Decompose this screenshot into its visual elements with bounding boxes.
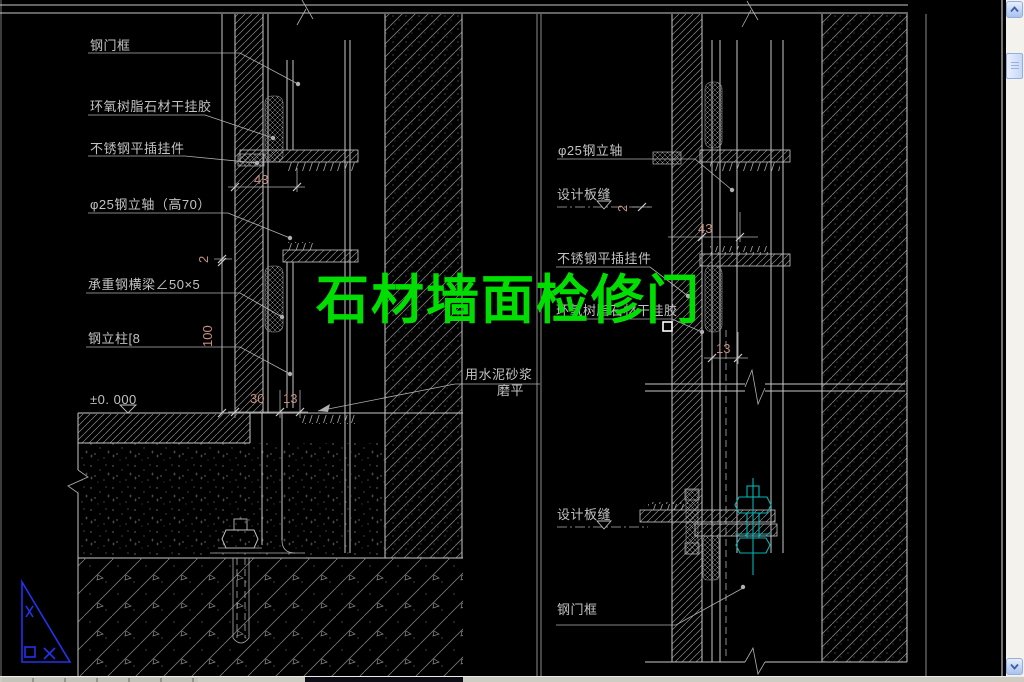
svg-text:2: 2 bbox=[615, 205, 630, 212]
cad-application-window: 钢门框 环氧树脂石材干挂胶 不锈钢平插挂件 φ25钢立轴（高70） 承重钢横梁∠… bbox=[0, 0, 1024, 682]
label-epoxy-adhesive: 环氧树脂石材干挂胶 bbox=[90, 99, 212, 114]
svg-text:100: 100 bbox=[200, 325, 215, 347]
svg-text:30: 30 bbox=[250, 391, 264, 406]
dim-100-left: 100 bbox=[200, 258, 226, 417]
taskbar-buttons-edge bbox=[2, 678, 198, 682]
mid-bracket bbox=[265, 242, 358, 424]
svg-text:13: 13 bbox=[283, 391, 297, 406]
right-detail-section bbox=[640, 14, 926, 676]
label-design-joint-top: 设计板缝 bbox=[557, 187, 611, 202]
chevron-up-icon bbox=[1010, 6, 1019, 13]
stone-panel-hatch bbox=[235, 14, 263, 413]
svg-text:43: 43 bbox=[698, 221, 712, 236]
vertical-scrollbar[interactable] bbox=[1006, 0, 1024, 676]
chevron-down-icon bbox=[1010, 663, 1019, 670]
drawing-canvas[interactable]: 钢门框 环氧树脂石材干挂胶 不锈钢平插挂件 φ25钢立轴（高70） 承重钢横梁∠… bbox=[0, 0, 1006, 676]
concrete-hatch bbox=[78, 443, 385, 558]
label-mortar-line1: 用水泥砂浆 bbox=[465, 367, 533, 382]
scrollbar-down-button[interactable] bbox=[1006, 658, 1023, 675]
label-steel-shaft: φ25钢立轴（高70） bbox=[90, 197, 211, 212]
selection-grip[interactable] bbox=[663, 322, 672, 331]
sealant-block bbox=[265, 96, 283, 162]
drawing-title[interactable]: 石材墙面检修门 bbox=[316, 271, 701, 330]
label-steel-beam: 承重钢横梁∠50×5 bbox=[88, 277, 200, 292]
scrollbar-up-button[interactable] bbox=[1006, 1, 1023, 18]
svg-text:2: 2 bbox=[196, 256, 211, 263]
label-steel-column: 钢立柱[8 bbox=[88, 331, 140, 346]
left-annotations: 钢门框 环氧树脂石材干挂胶 不锈钢平插挂件 φ25钢立轴（高70） 承重钢横梁∠… bbox=[86, 38, 540, 418]
label-door-frame: 钢门框 bbox=[90, 38, 131, 53]
leader-arrow bbox=[318, 404, 330, 412]
label-design-joint-bottom: 设计板缝 bbox=[557, 507, 611, 522]
svg-text:43: 43 bbox=[254, 172, 268, 187]
sealant-block bbox=[265, 266, 283, 332]
sealant-block bbox=[705, 82, 722, 148]
joint-marker-icon bbox=[597, 201, 611, 209]
wall-hatch bbox=[822, 14, 907, 662]
mid-bracket bbox=[700, 246, 790, 332]
stone-panel-hatch bbox=[672, 14, 702, 662]
set-square-icon bbox=[22, 582, 70, 662]
label-steel-shaft-right: φ25钢立轴 bbox=[558, 143, 623, 158]
scrollbar-thumb-grip bbox=[1011, 62, 1019, 71]
label-ss-anchor-right: 不锈钢平插挂件 bbox=[557, 251, 652, 266]
label-mortar-line2: 磨平 bbox=[497, 383, 524, 398]
svg-text:13: 13 bbox=[716, 341, 730, 356]
label-door-frame-right: 钢门框 bbox=[557, 602, 598, 617]
joint-marker-icon bbox=[597, 521, 611, 529]
taskbar-edge bbox=[0, 676, 1024, 682]
dim-2-left: 2 bbox=[196, 255, 232, 263]
taskbar-dark-segment bbox=[305, 677, 463, 682]
bottom-bracket bbox=[640, 478, 777, 580]
gravel-hatch bbox=[78, 558, 463, 676]
scrollbar-thumb[interactable] bbox=[1006, 53, 1023, 79]
label-ss-anchor: 不锈钢平插挂件 bbox=[90, 141, 185, 156]
dim-2-right: 2 bbox=[615, 203, 652, 212]
